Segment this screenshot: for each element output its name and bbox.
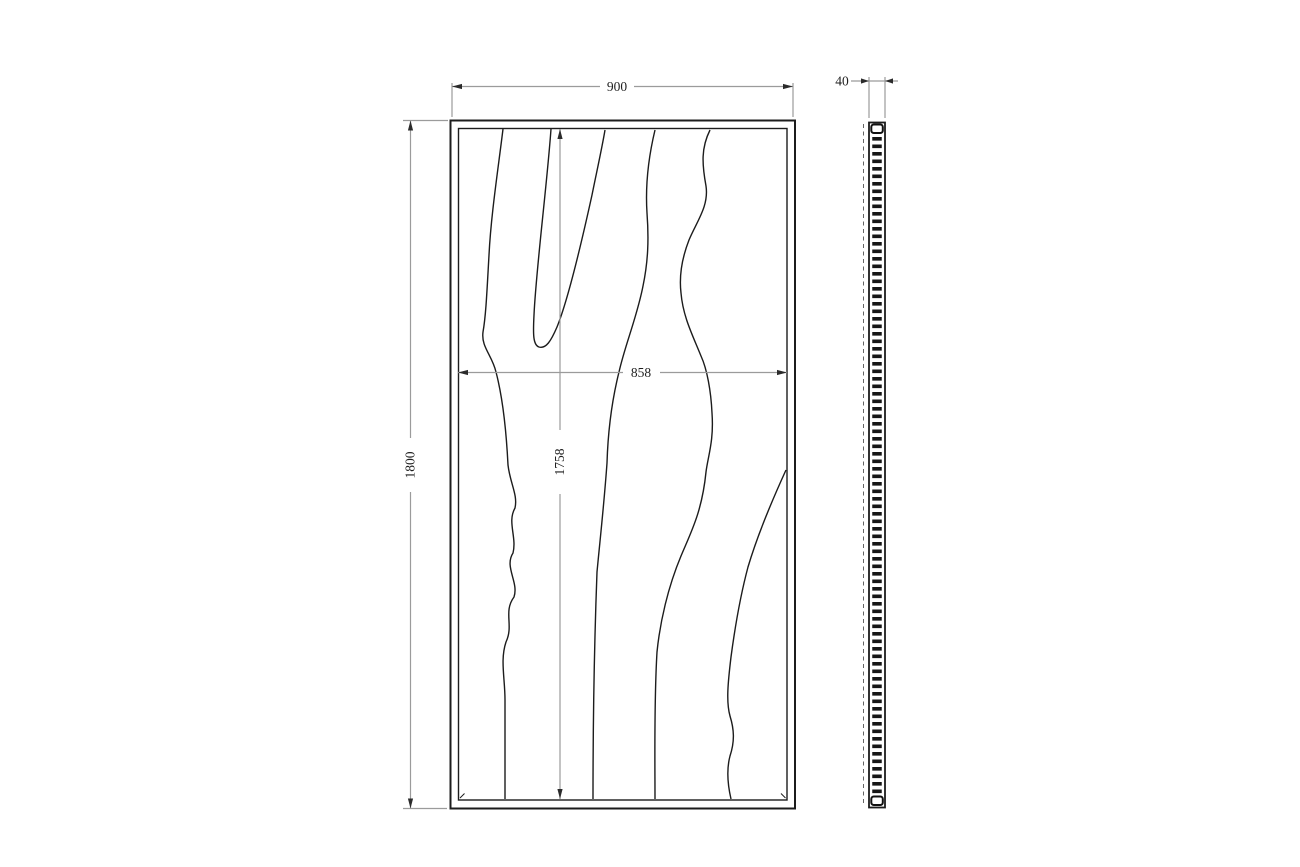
side-view	[864, 123, 886, 808]
arrowhead-top	[557, 129, 562, 139]
dim-overall-height: 1800	[403, 121, 449, 809]
cad-drawing-svg: 900 1800 858 1758	[0, 0, 1300, 867]
grain-line-1	[483, 129, 516, 799]
front-view	[451, 121, 796, 809]
arrowhead-top	[408, 121, 413, 131]
arrowhead-left	[861, 78, 869, 83]
dim-text-face-height: 1758	[552, 448, 567, 475]
grain-line-2-loop	[534, 129, 605, 347]
side-bottom-cap	[871, 797, 883, 806]
dim-text-face-width: 858	[631, 365, 652, 380]
dim-overall-width: 900	[452, 79, 793, 117]
arrowhead-bottom	[557, 789, 562, 799]
dim-face-height: 1758	[552, 129, 567, 799]
corner-tick-left	[460, 794, 465, 799]
arrowhead-right	[783, 84, 793, 89]
corner-ticks	[460, 794, 786, 799]
corner-tick-right	[781, 794, 786, 799]
side-outline	[869, 123, 885, 808]
dim-text-depth: 40	[835, 74, 849, 89]
dim-text-overall-width: 900	[607, 79, 628, 94]
dim-face-width: 858	[458, 365, 787, 380]
dim-text-overall-height: 1800	[403, 451, 418, 478]
arrowhead-left	[458, 370, 468, 375]
grain-line-5	[728, 470, 786, 799]
arrowhead-right	[885, 78, 893, 83]
grain-line-3	[593, 130, 655, 799]
arrowhead-right	[777, 370, 787, 375]
drawing-canvas: 900 1800 858 1758	[0, 0, 1300, 867]
dim-depth: 40	[835, 74, 898, 119]
front-outer-frame	[451, 121, 796, 809]
side-top-cap	[871, 125, 883, 134]
arrowhead-bottom	[408, 799, 413, 809]
wood-grain-lines	[483, 129, 786, 799]
grain-line-4	[655, 130, 713, 799]
arrowhead-left	[452, 84, 462, 89]
